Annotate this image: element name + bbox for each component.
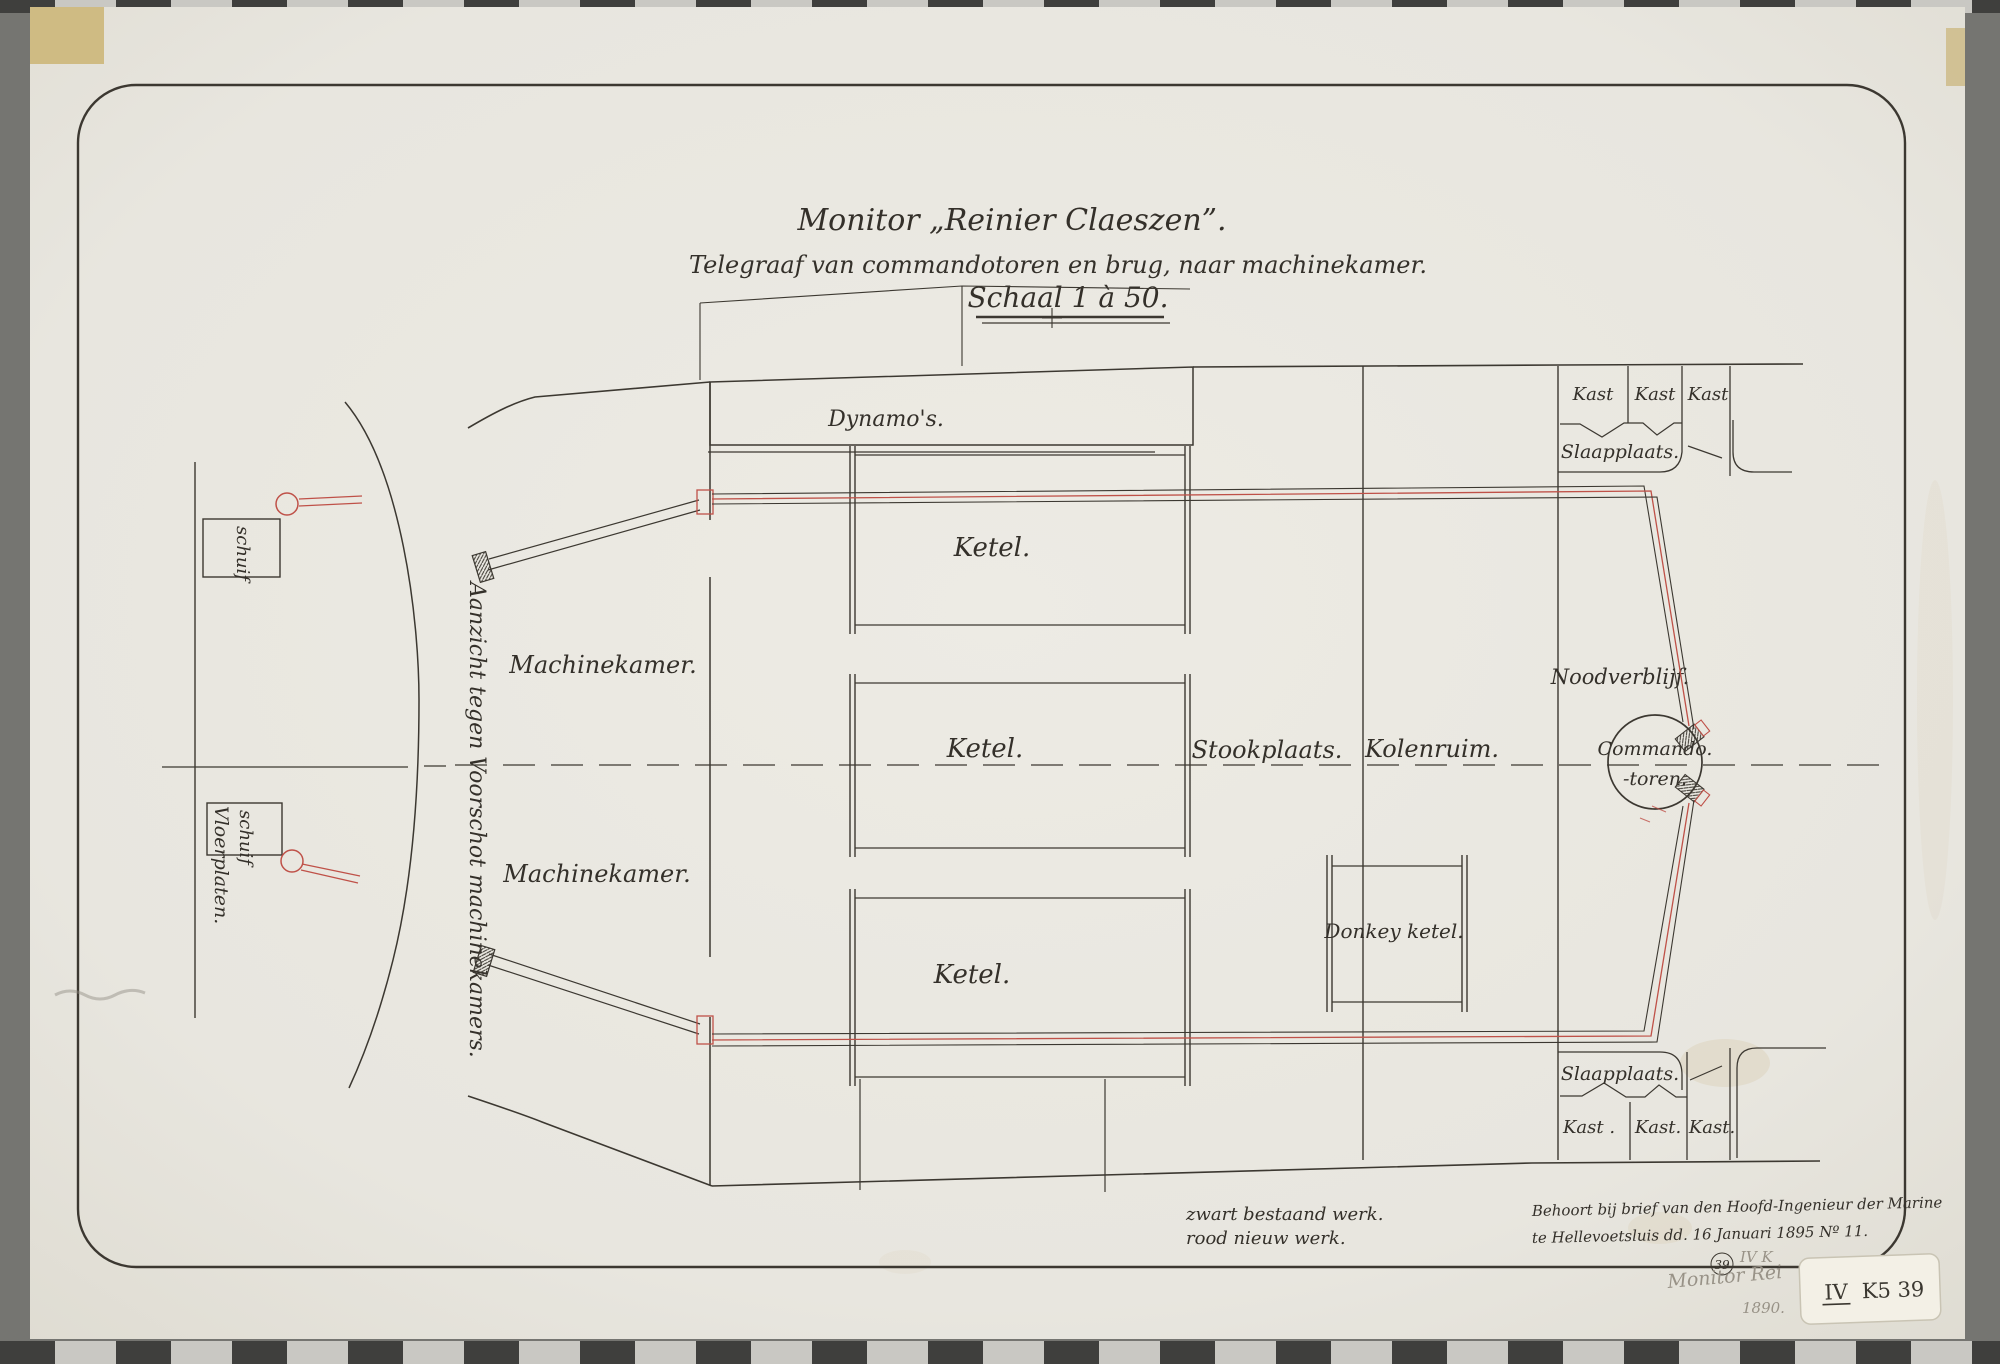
slaapplaats-top-label: Slaapplaats. xyxy=(1561,441,1679,463)
stain xyxy=(1917,480,1953,920)
sticker-numeral-underline xyxy=(1823,1304,1851,1305)
machinekamer-lower-label: Machinekamer. xyxy=(502,860,690,888)
ketel-top-label: Ketel. xyxy=(953,533,1031,563)
machinekamer-upper-label: Machinekamer. xyxy=(508,651,696,679)
kolenruim-label: Kolenruim. xyxy=(1364,735,1499,763)
ketel-bottom-label: Ketel. xyxy=(933,960,1011,990)
kast-top-1: Kast xyxy=(1572,384,1614,405)
drawing-subtitle: Telegraaf van commandotoren en brug, naa… xyxy=(689,251,1427,279)
end-view-caption: Aanzicht tegen Voorschot machinekamers. xyxy=(464,580,489,1058)
stookplaats-label: Stookplaats. xyxy=(1192,736,1343,764)
archive-sticker: IV K5 39 xyxy=(1799,1254,1941,1325)
ruler-strip-bottom xyxy=(0,1341,2000,1364)
kast-bottom-1: Kast . xyxy=(1562,1117,1615,1138)
ketel-middle-label: Ketel. xyxy=(946,734,1024,764)
drawing-title: Monitor „Reinier Claeszen”. xyxy=(796,203,1226,238)
sticker-code: K5 39 xyxy=(1861,1277,1924,1303)
pencil-year-note: 1890. xyxy=(1742,1299,1785,1317)
donkey-ketel-label: Donkey ketel. xyxy=(1323,919,1463,943)
legend-red-line: rood nieuw werk. xyxy=(1186,1228,1346,1249)
noodverblijf-label: Noodverblijf. xyxy=(1550,665,1690,689)
aged-edge-patch xyxy=(1946,28,1965,86)
kast-bottom-2: Kast. xyxy=(1634,1117,1681,1138)
legend-black-line: zwart bestaand werk. xyxy=(1185,1204,1383,1225)
schuif-label-lower: schuif xyxy=(235,810,256,868)
kast-bottom-3: Kast. xyxy=(1688,1117,1735,1138)
dynamos-label: Dynamo's. xyxy=(827,407,944,432)
vloerplaten-label: Vloerplaten. xyxy=(210,806,232,924)
schuif-label-upper: schuif xyxy=(232,526,253,584)
drawing-canvas: Monitor „Reinier Claeszen”. Telegraaf va… xyxy=(0,0,2000,1364)
kast-top-3: Kast xyxy=(1687,384,1729,405)
sticker-numeral: IV xyxy=(1824,1280,1849,1305)
aged-tape-patch xyxy=(30,7,104,64)
stain xyxy=(879,1250,931,1274)
slaapplaats-bottom-label: Slaapplaats. xyxy=(1561,1063,1679,1085)
scanned-ship-drawing: Monitor „Reinier Claeszen”. Telegraaf va… xyxy=(0,0,2000,1364)
stain xyxy=(1680,1039,1770,1087)
kast-top-2: Kast xyxy=(1634,384,1676,405)
